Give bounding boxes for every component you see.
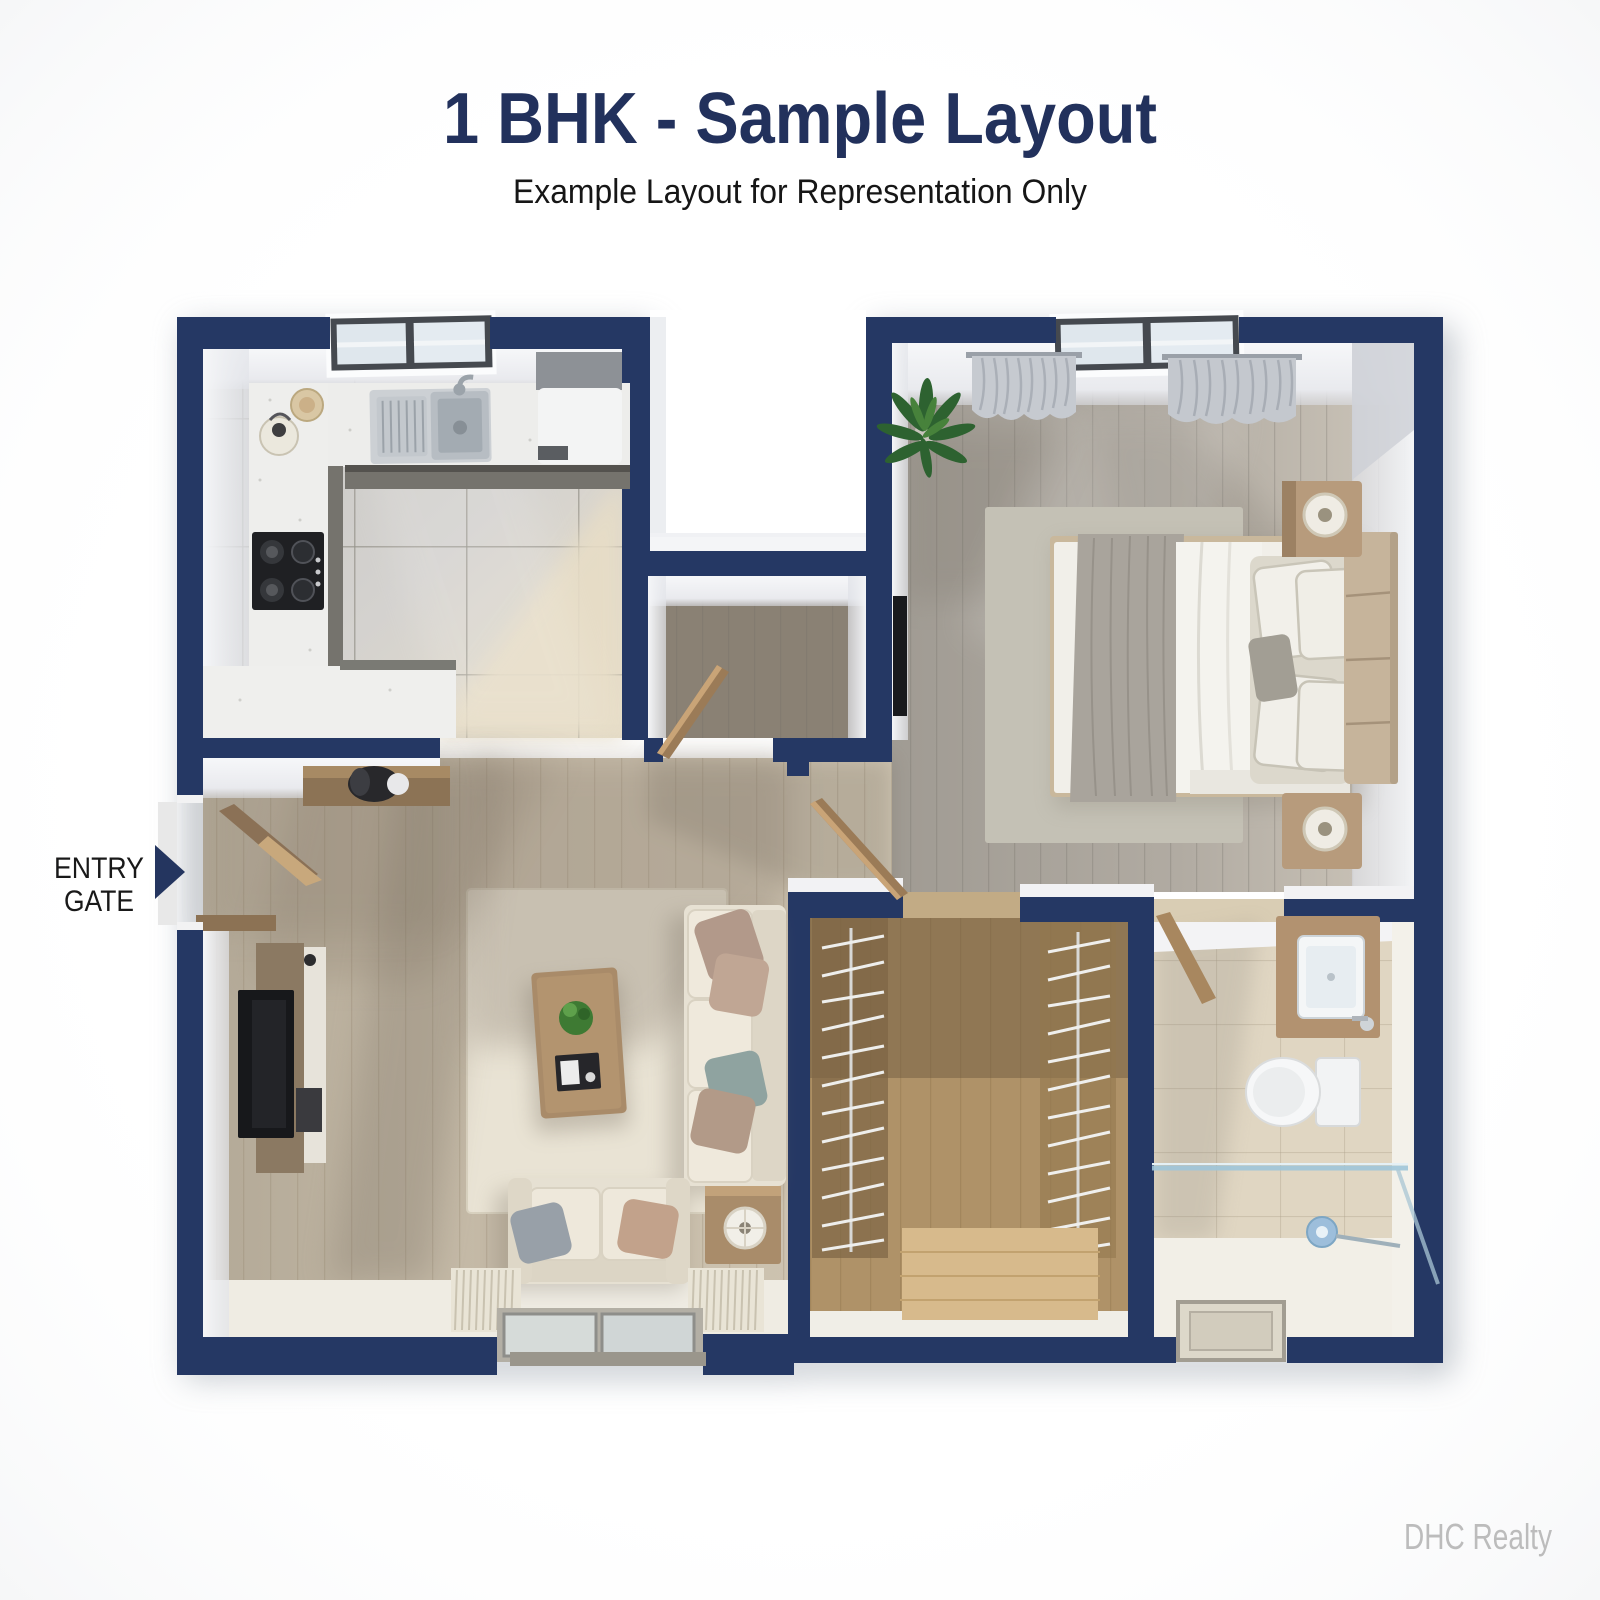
svg-text:DHC Realty: DHC Realty xyxy=(1404,1516,1552,1557)
svg-text:1 BHK - Sample Layout: 1 BHK - Sample Layout xyxy=(443,79,1157,159)
svg-text:Example Layout for Representat: Example Layout for Representation Only xyxy=(513,173,1087,211)
svg-text:GATE: GATE xyxy=(64,885,134,918)
svg-text:ENTRY: ENTRY xyxy=(54,852,144,885)
